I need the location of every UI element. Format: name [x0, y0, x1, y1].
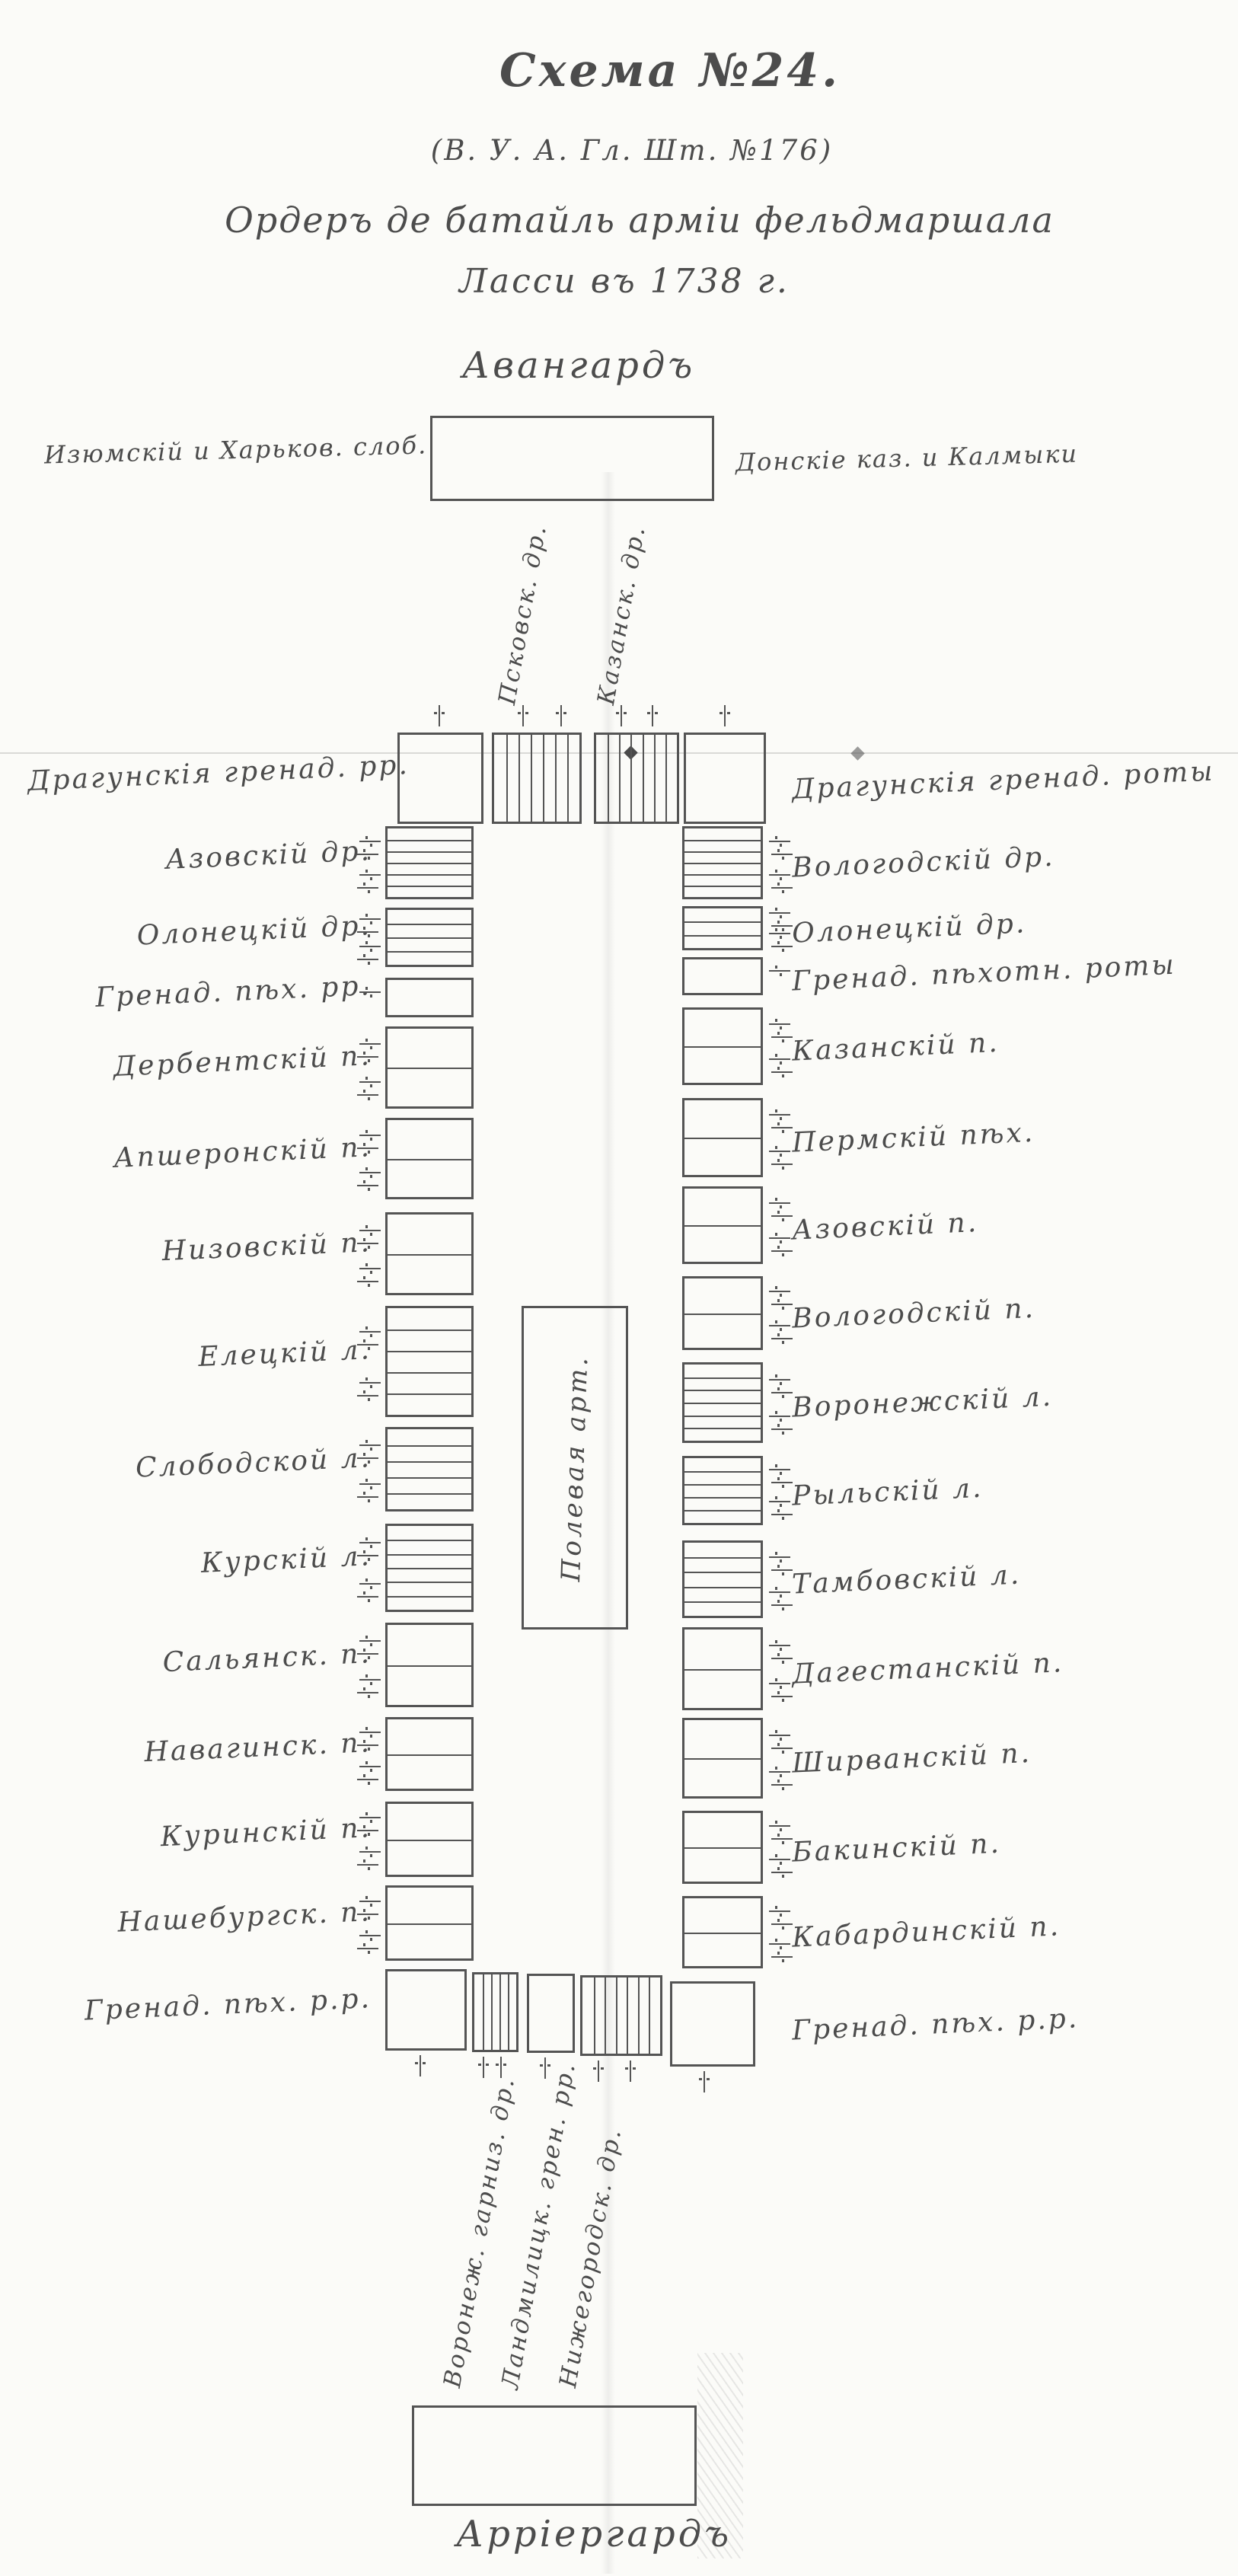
unit-box [682, 1896, 763, 1968]
file-divider [499, 1974, 501, 2051]
company-divider [387, 1493, 472, 1495]
standard-icon [356, 1088, 380, 1102]
standard-icon [358, 1376, 382, 1390]
company-divider [684, 863, 761, 864]
unit-box [385, 978, 474, 1017]
standard-icon [356, 1179, 380, 1192]
company-divider [684, 1377, 761, 1379]
page: Схема №24. (В. У. А. Гл. Шт. №176) Ордер… [0, 0, 1238, 2576]
standard-icon [356, 1050, 380, 1064]
standard-icon [356, 953, 380, 966]
company-divider [387, 1568, 472, 1569]
standard-icon [770, 1741, 794, 1755]
company-divider [387, 1329, 472, 1331]
standard-icon [767, 835, 792, 848]
standard-icon [358, 912, 382, 926]
standard-icon [767, 1319, 792, 1333]
standard-icon [358, 1929, 382, 1942]
standard-icon [413, 2055, 427, 2080]
standard-icon [356, 1686, 380, 1700]
standard-icon [358, 1894, 382, 1908]
standard-icon [767, 1231, 792, 1245]
company-divider [684, 1557, 761, 1559]
standard-icon [356, 1549, 380, 1563]
battalion-divider [387, 1068, 472, 1069]
vanguard-left-label: Изюмскій и Харьков. слоб. [44, 430, 426, 469]
unit-box [385, 908, 474, 967]
battalion-divider [387, 1254, 472, 1256]
unit-box [682, 1276, 763, 1350]
unit-label: Дербентскій п. [27, 1040, 372, 1087]
unit-label: Гренад. пѣх. р.р. [791, 1996, 1233, 2046]
unit-label: Навагинск. п. [27, 1727, 372, 1773]
standard-icon [770, 1690, 794, 1703]
file-divider [619, 734, 621, 822]
unit-box [385, 1717, 474, 1791]
company-divider [387, 1445, 472, 1447]
company-divider [387, 851, 472, 853]
standard-icon [356, 1451, 380, 1465]
company-divider [387, 1554, 472, 1556]
unit-box [385, 1802, 474, 1877]
standard-icon [356, 1275, 380, 1288]
standard-icon [767, 1463, 792, 1476]
schema-title: Схема №24. [472, 44, 868, 97]
file-divider [543, 734, 544, 822]
standard-icon [767, 1937, 792, 1951]
unit-box [682, 1362, 763, 1443]
standard-icon [356, 1942, 380, 1955]
standard-icon [356, 1237, 380, 1250]
standard-icon [770, 1422, 794, 1436]
unit-label: Курскій л. [27, 1540, 372, 1587]
main-heading-line2: Ласси въ 1738 г. [358, 262, 891, 301]
standard-icon [358, 1811, 382, 1824]
standard-icon [358, 1577, 382, 1591]
standard-icon [624, 2060, 637, 2085]
standard-icon [767, 927, 792, 940]
standard-icon [356, 1141, 380, 1155]
standard-icon [356, 847, 380, 861]
standard-icon [432, 705, 446, 729]
company-divider [387, 1596, 472, 1598]
standard-icon [358, 1037, 382, 1051]
standard-icon [356, 1858, 380, 1872]
company-divider [387, 951, 472, 953]
unit-box [682, 957, 763, 995]
standard-icon [770, 1244, 794, 1258]
file-divider [508, 1974, 509, 2051]
company-divider [387, 1540, 472, 1541]
standard-icon [770, 1476, 794, 1489]
unit-box [682, 906, 763, 950]
unit-label: Ширванскій п. [791, 1729, 1233, 1779]
unit-label: Тамбовскій л. [791, 1550, 1233, 1600]
standard-icon [770, 1652, 794, 1665]
standard-icon [770, 1563, 794, 1577]
unit-label: Бакинскій п. [791, 1818, 1233, 1868]
battalion-divider [387, 1754, 472, 1756]
unit-label: Гренад. пѣхотн. роты [791, 946, 1233, 997]
standard-icon [767, 1285, 792, 1298]
standard-icon [356, 881, 380, 895]
standard-icon [770, 881, 794, 895]
standard-icon [356, 1647, 380, 1661]
standard-icon [767, 1373, 792, 1387]
company-divider [387, 1461, 472, 1463]
unit-label: Рыльскій л. [791, 1461, 1233, 1511]
company-divider [387, 937, 472, 939]
standard-icon [767, 964, 792, 978]
company-divider [684, 874, 761, 876]
file-divider [643, 734, 644, 822]
standard-icon [358, 1477, 382, 1491]
company-divider [684, 921, 761, 923]
file-divider [654, 734, 656, 822]
unit-box [682, 1627, 763, 1710]
standard-icon [767, 1639, 792, 1652]
company-divider [387, 924, 472, 925]
top-row-box [397, 733, 483, 824]
bottom-row-box [472, 1972, 518, 2052]
vanguard-heading: Авангардъ [426, 344, 731, 387]
standard-icon [770, 1386, 794, 1400]
standard-icon [358, 1224, 382, 1237]
unit-box [682, 1811, 763, 1884]
company-divider [387, 874, 472, 876]
file-divider [608, 734, 609, 822]
vanguard-right-label: Донскіе каз. и Калмыки [735, 436, 1224, 477]
battalion-divider [387, 1159, 472, 1160]
unit-box [385, 1212, 474, 1295]
file-divider [616, 1977, 617, 2054]
unit-box [682, 1540, 763, 1618]
standard-icon [770, 1832, 794, 1846]
standard-icon [356, 1738, 380, 1752]
unit-box [385, 1026, 474, 1109]
standard-icon [358, 985, 382, 999]
company-divider [684, 1484, 761, 1486]
company-divider [387, 1582, 472, 1583]
standard-icon [767, 906, 792, 920]
standard-icon [358, 940, 382, 953]
standard-icon [697, 2071, 711, 2096]
standard-icon [356, 1824, 380, 1837]
artillery-label: Полевая арт. [556, 1354, 594, 1582]
standard-icon [358, 1760, 382, 1773]
standard-icon [358, 835, 382, 848]
standard-icon [770, 1866, 794, 1879]
company-divider [387, 840, 472, 841]
file-divider [491, 1974, 493, 2051]
archive-reference: (В. У. А. Гл. Шт. №176) [411, 134, 853, 167]
standard-icon [767, 1052, 792, 1066]
battalion-divider [684, 1847, 761, 1849]
unit-label: Казанскій п. [791, 1017, 1233, 1067]
rearguard-heading: Арріергардъ [426, 2513, 761, 2555]
standard-icon [767, 1017, 792, 1031]
company-divider [684, 886, 761, 887]
standard-icon [767, 1409, 792, 1423]
file-divider [630, 734, 632, 822]
company-divider [684, 1587, 761, 1588]
top-row-box [684, 733, 766, 824]
standard-icon [646, 705, 659, 729]
company-divider [684, 1428, 761, 1429]
standard-icon [767, 1765, 792, 1779]
company-divider [684, 1497, 761, 1499]
file-divider [506, 734, 508, 822]
artillery-box: Полевая арт. [522, 1306, 628, 1630]
standard-icon [358, 1128, 382, 1142]
standard-icon [770, 1121, 794, 1135]
company-divider [387, 886, 472, 887]
standard-icon [770, 1917, 794, 1931]
battalion-divider [684, 1933, 761, 1934]
unit-label: Воронежскій л. [791, 1373, 1233, 1423]
unit-label: Азовскій п. [791, 1195, 1233, 1246]
battalion-divider [387, 1840, 472, 1841]
unit-label: Азовскій др. [27, 835, 372, 882]
battalion-divider [684, 1758, 761, 1760]
company-divider [684, 1416, 761, 1417]
file-divider [594, 1977, 595, 2054]
standard-icon [767, 1196, 792, 1210]
bottom-row-box [385, 1969, 467, 2051]
standard-icon [356, 1389, 380, 1403]
unit-label: Драгунскія гренад. рр. [27, 751, 372, 797]
road-label: Нижегородск. др. [554, 2125, 627, 2389]
company-divider [387, 1351, 472, 1352]
top-row-box [594, 733, 679, 824]
file-divider [518, 734, 520, 822]
unit-box [385, 1885, 474, 1961]
company-divider [387, 1477, 472, 1479]
unit-label: Гренад. пѣх. рр. [27, 970, 372, 1017]
standard-icon [770, 1508, 794, 1521]
standard-icon [767, 1729, 792, 1742]
company-divider [684, 1510, 761, 1511]
standard-icon [356, 1490, 380, 1504]
standard-icon [356, 925, 380, 939]
standard-icon [770, 940, 794, 953]
battalion-divider [684, 1046, 761, 1048]
standard-icon [477, 2057, 490, 2081]
company-divider [684, 1403, 761, 1404]
standard-icon [358, 1634, 382, 1648]
unit-label: Кабардинскій п. [791, 1903, 1233, 1953]
company-divider [387, 1393, 472, 1395]
battalion-divider [684, 1138, 761, 1139]
standard-icon [770, 1065, 794, 1079]
file-divider [531, 734, 532, 822]
unit-label: Нашебургск. п. [27, 1896, 372, 1942]
unit-label: Гренад. пѣх. р.р. [27, 1983, 372, 2029]
battalion-divider [684, 1225, 761, 1227]
unit-box [385, 1118, 474, 1199]
standard-icon [358, 868, 382, 882]
file-divider [627, 1977, 628, 2054]
file-divider [649, 1977, 650, 2054]
unit-label: Олонецкій др. [791, 899, 1233, 949]
standard-icon [770, 1778, 794, 1792]
standard-icon [516, 705, 530, 729]
battalion-divider [684, 1669, 761, 1671]
unit-label: Вологодскій др. [791, 833, 1233, 883]
standard-icon [358, 1845, 382, 1859]
unit-box [682, 1007, 763, 1085]
standard-icon [554, 705, 568, 729]
standard-icon [614, 705, 628, 729]
standard-icon [770, 1209, 794, 1223]
standard-icon [767, 1144, 792, 1158]
unit-label: Елецкій л. [27, 1334, 372, 1381]
standard-icon [358, 1673, 382, 1687]
file-divider [483, 1974, 484, 2051]
ink-blot [850, 746, 864, 760]
bottom-row-box [527, 1974, 575, 2053]
unit-box [385, 826, 474, 899]
unit-label: Слободской л. [27, 1442, 372, 1489]
unit-label: Дагестанскій п. [791, 1639, 1233, 1690]
file-divider [555, 734, 557, 822]
unit-label: Апшеронскій п. [27, 1132, 372, 1178]
standard-icon [358, 1725, 382, 1739]
company-divider [684, 851, 761, 853]
company-divider [684, 935, 761, 937]
unit-box [385, 1427, 474, 1511]
unit-label: Сальянск. п. [27, 1638, 372, 1684]
standard-icon [767, 1677, 792, 1690]
standard-icon [358, 1262, 382, 1275]
battalion-divider [387, 1665, 472, 1667]
company-divider [387, 1372, 472, 1374]
unit-box [682, 1718, 763, 1799]
road-label: Псковск. др. [493, 522, 552, 707]
unit-label: Куринскій п. [27, 1812, 372, 1859]
standard-icon [767, 868, 792, 882]
standard-icon [767, 1550, 792, 1564]
standard-icon [358, 1438, 382, 1452]
company-divider [684, 1601, 761, 1603]
unit-label: Вологодскій п. [791, 1284, 1233, 1334]
company-divider [684, 1572, 761, 1573]
unit-label: Драгунскія гренад. роты [791, 755, 1233, 805]
unit-box [682, 826, 763, 899]
standard-icon [592, 2060, 605, 2085]
unit-box [385, 1306, 474, 1417]
file-divider [567, 734, 569, 822]
standard-icon [770, 1598, 794, 1612]
standard-icon [767, 1853, 792, 1866]
vanguard-box [430, 416, 714, 501]
company-divider [684, 1390, 761, 1391]
standard-icon [770, 1030, 794, 1044]
standard-icon [356, 1773, 380, 1786]
main-heading-line1: Ордеръ де батайль арміи фельдмаршала [99, 200, 1180, 241]
standard-icon [767, 1108, 792, 1122]
company-divider [684, 840, 761, 841]
standard-icon [770, 847, 794, 861]
standard-icon [358, 1075, 382, 1089]
bottom-row-box [580, 1975, 662, 2056]
standard-icon [770, 1950, 794, 1964]
company-divider [387, 863, 472, 864]
unit-label: Пермскій пѣх. [791, 1108, 1233, 1158]
standard-icon [718, 705, 732, 729]
standard-icon [767, 1904, 792, 1918]
bottom-row-box [670, 1981, 755, 2067]
battalion-divider [387, 1923, 472, 1925]
standard-icon [356, 1590, 380, 1604]
battalion-divider [684, 1314, 761, 1315]
file-divider [638, 1977, 640, 2054]
standard-icon [358, 1325, 382, 1339]
standard-icon [358, 1536, 382, 1550]
company-divider [684, 1471, 761, 1473]
unit-label: Олонецкій др. [27, 910, 372, 956]
standard-icon [356, 1907, 380, 1921]
unit-box [385, 1623, 474, 1707]
unit-box [385, 1524, 474, 1612]
unit-label: Низовскій п. [27, 1227, 372, 1273]
standard-icon [356, 1338, 380, 1352]
unit-box [682, 1456, 763, 1525]
standard-icon [767, 1495, 792, 1508]
standard-icon [767, 1819, 792, 1833]
standard-icon [358, 1166, 382, 1179]
standard-icon [770, 1298, 794, 1311]
standard-icon [767, 1585, 792, 1599]
top-row-box [492, 733, 582, 824]
file-divider [665, 734, 667, 822]
standard-icon [770, 1157, 794, 1171]
unit-box [682, 1186, 763, 1264]
unit-box [682, 1098, 763, 1177]
rearguard-box [412, 2405, 697, 2506]
file-divider [605, 1977, 606, 2054]
standard-icon [770, 1332, 794, 1345]
